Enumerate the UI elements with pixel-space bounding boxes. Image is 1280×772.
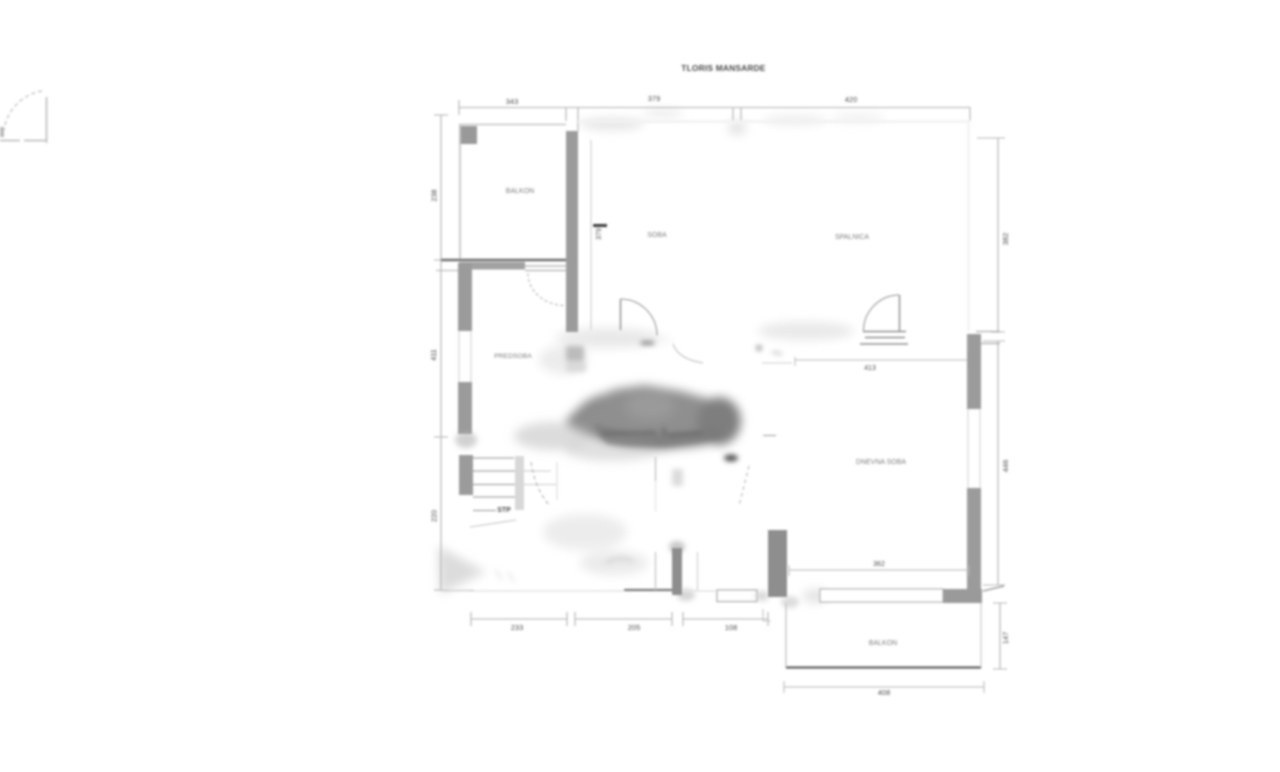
svg-text:408: 408 [878,688,891,697]
svg-text:446: 446 [1001,460,1010,473]
svg-text:BALKON: BALKON [506,188,534,195]
svg-text:220: 220 [430,510,439,522]
svg-text:147: 147 [1001,632,1010,645]
svg-text:238: 238 [430,190,439,202]
svg-text:PREDSOBA: PREDSOBA [494,353,532,360]
svg-text:420: 420 [845,95,858,104]
svg-text:379: 379 [596,228,603,240]
svg-text:108: 108 [725,623,738,632]
svg-text:413: 413 [864,365,876,372]
svg-text:362: 362 [873,561,885,568]
svg-text:TLORIS MANSARDE: TLORIS MANSARDE [681,63,766,73]
svg-text:BALKON: BALKON [869,640,897,647]
svg-text:DNEVNA SOBA: DNEVNA SOBA [856,459,907,466]
svg-text:382: 382 [1001,233,1010,246]
svg-text:STP: STP [497,507,511,514]
svg-text:SPALNICA: SPALNICA [835,234,869,241]
svg-text:343: 343 [506,97,519,106]
svg-text:233: 233 [511,623,524,632]
svg-text:205: 205 [628,623,641,632]
svg-text:SOBA: SOBA [647,232,667,239]
svg-text:379: 379 [648,94,661,103]
svg-text:411: 411 [429,349,438,360]
